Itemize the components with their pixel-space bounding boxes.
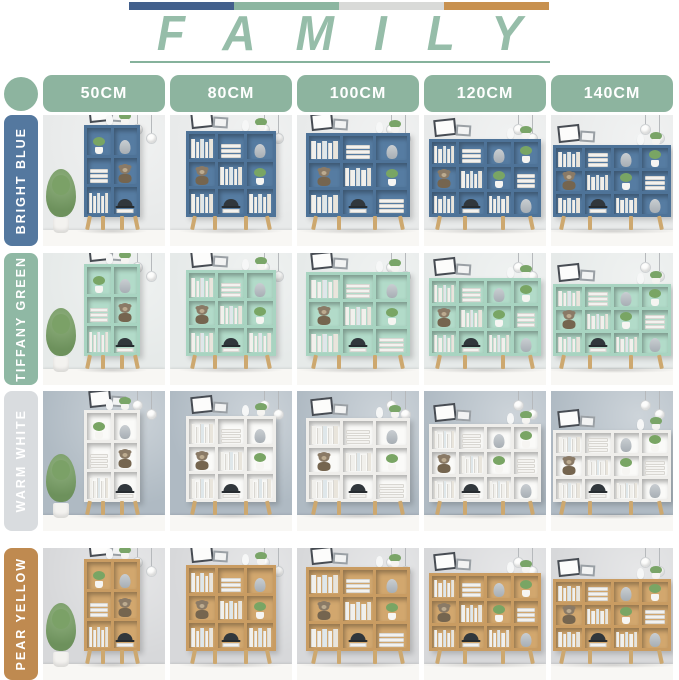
vase [255, 429, 266, 443]
shelf-compartment [218, 301, 244, 326]
bookshelf [186, 416, 276, 502]
teddy-bear [317, 306, 332, 325]
teddy-bear [118, 598, 133, 617]
picture-frame [310, 397, 334, 416]
shelf-compartment [459, 452, 483, 474]
size-pill-120cm[interactable]: 120CM [424, 75, 546, 112]
shelf-compartment [309, 163, 340, 187]
color-pill-bright-blue[interactable]: BRIGHT BLUE [4, 115, 38, 246]
product-photo-bright-blue-80cm[interactable] [170, 115, 292, 246]
shelf-compartment [376, 136, 407, 160]
shelf-compartment [114, 158, 138, 185]
picture-frame [433, 257, 457, 276]
potted-plant [619, 312, 633, 329]
shelf-compartment [585, 148, 611, 168]
hat [348, 199, 367, 213]
shelf-compartment [189, 419, 215, 444]
product-photo-tiffany-green-50cm[interactable] [43, 253, 165, 385]
hat [222, 199, 241, 213]
bookshelf [306, 133, 410, 217]
shelf-compartment [343, 190, 374, 214]
lamp-cord [405, 253, 406, 271]
shelf-compartment [487, 427, 511, 449]
color-pill-warm-white[interactable]: WARM WHITE [4, 391, 38, 531]
books [311, 333, 338, 352]
plant-foliage [52, 609, 70, 629]
plant-foliage [52, 175, 70, 195]
family-bookshelf-collage: FAMILY 50CM80CM100CM120CM140CM BRIGHT BL… [0, 0, 679, 680]
book-stack [517, 607, 535, 622]
picture-frame [557, 124, 581, 143]
hat [588, 484, 607, 498]
books [191, 572, 213, 592]
picture-frame [190, 115, 214, 129]
shelf-compartment [309, 597, 340, 621]
book-stack [379, 483, 404, 498]
shelf-leg [463, 355, 467, 369]
shelf-leg [244, 501, 248, 515]
shelf-compartment [247, 162, 273, 187]
potted-plant [619, 173, 633, 190]
shelf-body [306, 418, 410, 502]
lamp-cord [151, 391, 152, 409]
vase [493, 288, 504, 302]
vase [255, 144, 266, 158]
shelf-compartment [376, 275, 407, 299]
product-photo-tiffany-green-100cm[interactable] [297, 253, 419, 385]
book-stack [346, 283, 371, 298]
variant-row-bright-blue: BRIGHT BLUE [4, 115, 673, 246]
books [616, 482, 638, 498]
bust-vase [637, 134, 644, 145]
shelf-compartment [114, 297, 138, 324]
shelf-compartment [459, 427, 483, 449]
shelf-body [84, 264, 140, 356]
bust-vase [507, 128, 514, 139]
vase [650, 338, 661, 352]
books [249, 193, 271, 213]
shelf-compartment [459, 306, 483, 328]
hat [116, 633, 135, 647]
shelf-compartment [487, 626, 511, 648]
potted-plant [92, 276, 106, 293]
product-photo-tiffany-green-120cm[interactable] [424, 253, 546, 385]
lamp-cord [391, 391, 392, 400]
books [616, 197, 638, 213]
top-plant [118, 253, 132, 264]
shelf-compartment [343, 475, 374, 499]
shelf-compartment [614, 456, 640, 476]
product-photo-tiffany-green-80cm[interactable] [170, 253, 292, 385]
lamp-bulb [146, 566, 157, 577]
shelf-leg [629, 216, 633, 230]
books [249, 332, 271, 352]
vase [650, 199, 661, 213]
top-plant [254, 403, 268, 416]
books [558, 197, 580, 213]
product-photo-pear-yellow-80cm[interactable] [170, 548, 292, 680]
shelf-body [186, 565, 276, 651]
shelf-compartment [642, 310, 668, 330]
vase [120, 425, 131, 439]
shelf-compartment [432, 331, 456, 353]
shelf-compartment [614, 479, 640, 499]
potted-plant [385, 603, 399, 620]
books [558, 336, 580, 352]
books [311, 279, 338, 298]
book-stack [221, 282, 241, 297]
shelf-compartment [87, 443, 111, 470]
hat [348, 338, 367, 352]
shelf-compartment [376, 624, 407, 648]
lamp-cord [405, 391, 406, 409]
shelf-compartment [114, 621, 138, 648]
shelf-compartment [642, 287, 668, 307]
picture-frame [456, 409, 472, 421]
vase [255, 283, 266, 297]
shelf-compartment [247, 189, 273, 214]
shelf-leg [213, 501, 217, 515]
picture-frame [213, 116, 229, 128]
bust-vase [106, 548, 113, 559]
product-photo-warm-white-50cm[interactable] [43, 391, 165, 531]
potted-plant [492, 171, 506, 188]
shelf-leg [501, 355, 505, 369]
shelf-compartment [343, 136, 374, 160]
shelf-body [429, 278, 541, 356]
ground-shadow [299, 367, 417, 373]
shelf-compartment [432, 477, 456, 499]
book-stack [517, 312, 535, 327]
shelf-compartment [309, 421, 340, 445]
shelf-compartment [218, 568, 244, 593]
top-plant [388, 554, 402, 567]
lamp-cord [659, 548, 660, 566]
floor-plant [46, 169, 76, 233]
books [311, 628, 338, 647]
size-pill-80cm[interactable]: 80CM [170, 75, 292, 112]
shelf-compartment [309, 275, 340, 299]
product-photo-tiffany-green-140cm[interactable] [551, 253, 673, 385]
shelf-compartment [376, 421, 407, 445]
shelf-leg [213, 355, 217, 369]
product-photo-warm-white-80cm[interactable] [170, 391, 292, 531]
hat [462, 633, 481, 647]
books [220, 166, 242, 186]
shelf-compartment [585, 310, 611, 330]
size-pill-100cm[interactable]: 100CM [297, 75, 419, 112]
hat [116, 199, 135, 213]
picture-frame [190, 395, 214, 414]
shelf-leg [501, 650, 505, 664]
shelf-compartment [487, 576, 511, 598]
top-plant [118, 115, 132, 125]
teddy-bear [317, 167, 332, 186]
product-photo-warm-white-140cm[interactable] [551, 391, 673, 531]
potted-plant [385, 308, 399, 325]
shelf-compartment [585, 479, 611, 499]
size-pill-140cm[interactable]: 140CM [551, 75, 673, 112]
books [461, 455, 481, 473]
bust-vase [637, 568, 644, 579]
shelf-body [84, 410, 140, 502]
product-photo-bright-blue-100cm[interactable] [297, 115, 419, 246]
product-photo-bright-blue-120cm[interactable] [424, 115, 546, 246]
plant-pot [53, 503, 69, 518]
books [311, 425, 338, 444]
shelf-body [186, 416, 276, 502]
potted-plant [519, 146, 533, 163]
hat [222, 338, 241, 352]
pendant-lamp [146, 548, 157, 577]
books [311, 479, 338, 498]
shelf-compartment [247, 273, 273, 298]
books [191, 423, 213, 443]
shelf-compartment [459, 331, 483, 353]
bookshelf [186, 131, 276, 217]
book-stack [221, 143, 241, 158]
vase [386, 284, 397, 298]
lamp-cord [645, 115, 646, 124]
book-stack [645, 460, 665, 475]
books [345, 452, 372, 471]
shelf-compartment [459, 142, 483, 164]
shelf-compartment [432, 167, 456, 189]
product-photo-pear-yellow-50cm[interactable] [43, 548, 165, 680]
shelf-compartment [189, 189, 215, 214]
shelf-body [429, 573, 541, 651]
teddy-bear [195, 305, 210, 324]
books [461, 170, 481, 188]
pendant-lamp [513, 391, 524, 411]
shelf-compartment [247, 623, 273, 648]
vase [120, 574, 131, 588]
picture-frame [310, 115, 334, 131]
books [434, 334, 454, 352]
shelf-body [186, 270, 276, 356]
pendant-lamp [654, 391, 665, 420]
product-photo-pear-yellow-140cm[interactable] [551, 548, 673, 680]
color-pill-pear-yellow[interactable]: PEAR YELLOW [4, 548, 38, 680]
vase [493, 583, 504, 597]
shelf-leg [120, 650, 124, 664]
ground-shadow [299, 513, 417, 519]
potted-plant [92, 571, 106, 588]
shelf-compartment [459, 576, 483, 598]
shelf-compartment [642, 171, 668, 191]
shelf-compartment [642, 333, 668, 353]
shelf-compartment [514, 427, 538, 449]
color-pill-label: BRIGHT BLUE [14, 127, 28, 234]
book-stack [517, 173, 535, 188]
potted-plant [253, 307, 267, 324]
shelf-compartment [376, 190, 407, 214]
books [89, 626, 109, 647]
pendant-lamp [640, 253, 651, 273]
shelf-compartment [376, 475, 407, 499]
shelf-compartment [642, 194, 668, 214]
shelf-leg [501, 501, 505, 515]
books [220, 600, 242, 620]
product-photo-pear-yellow-120cm[interactable] [424, 548, 546, 680]
teddy-bear [561, 310, 576, 329]
picture-frame [557, 409, 581, 428]
top-plant [388, 120, 402, 133]
book-stack [346, 578, 371, 593]
shelf-compartment [218, 419, 244, 444]
top-plant [649, 417, 663, 430]
shelf-compartment [487, 306, 511, 328]
ground-shadow [424, 662, 546, 668]
top-plant [388, 405, 402, 418]
shelf-compartment [309, 475, 340, 499]
top-plant [519, 560, 533, 573]
books [345, 167, 372, 186]
teddy-bear [437, 603, 452, 622]
shelf-compartment [218, 623, 244, 648]
shelf-compartment [614, 605, 640, 625]
product-photo-bright-blue-50cm[interactable] [43, 115, 165, 246]
books [587, 459, 609, 475]
shelf-compartment [114, 472, 138, 499]
shelf-compartment [514, 281, 538, 303]
lamp-cord [518, 253, 519, 262]
shelf-compartment [218, 474, 244, 499]
lamp-cord [518, 115, 519, 124]
shelf-compartment [218, 447, 244, 472]
picture-frame [213, 550, 229, 562]
shelf-compartment [614, 333, 640, 353]
bust-vase [106, 253, 113, 264]
shelf-compartment [514, 306, 538, 328]
color-pill-label: TIFFANY GREEN [14, 256, 28, 382]
vase [120, 279, 131, 293]
picture-frame [580, 564, 596, 576]
book-stack [517, 458, 535, 473]
shelf-compartment [556, 287, 582, 307]
shelf-compartment [432, 142, 456, 164]
shelf-compartment [432, 281, 456, 303]
bookshelf [553, 284, 671, 356]
top-plant [519, 126, 533, 139]
books [587, 608, 609, 624]
shelf-compartment [343, 421, 374, 445]
picture-frame [333, 403, 349, 415]
shelf-compartment [376, 597, 407, 621]
legend-dot [4, 77, 38, 111]
lamp-cord [659, 115, 660, 133]
picture-frame [433, 118, 457, 137]
shelf-compartment [487, 477, 511, 499]
books [558, 482, 580, 498]
shelf-compartment [87, 413, 111, 440]
top-plant [388, 259, 402, 272]
bust-vase [106, 399, 113, 410]
shelf-compartment [585, 333, 611, 353]
shelf-compartment [514, 142, 538, 164]
shelf-compartment [585, 582, 611, 602]
color-pill-tiffany-green[interactable]: TIFFANY GREEN [4, 253, 38, 385]
shelf-compartment [487, 281, 511, 303]
books [558, 631, 580, 647]
picture-frame [456, 124, 472, 136]
bookshelf [429, 139, 541, 217]
shelf-body [84, 125, 140, 217]
product-photo-warm-white-120cm[interactable] [424, 391, 546, 531]
hat [222, 633, 241, 647]
shelf-compartment [487, 601, 511, 623]
shelf-body [553, 284, 671, 356]
hat [588, 199, 607, 213]
picture-frame [557, 558, 581, 577]
teddy-bear [437, 169, 452, 188]
teddy-bear [195, 451, 210, 470]
variant-row-tiffany-green: TIFFANY GREEN [4, 253, 673, 385]
potted-plant [648, 584, 662, 601]
shelf-compartment [247, 596, 273, 621]
lamp-cord [405, 548, 406, 566]
ground-shadow [299, 228, 417, 234]
shelf-leg [101, 216, 105, 230]
product-photo-pear-yellow-100cm[interactable] [297, 548, 419, 680]
pendant-lamp [132, 391, 143, 411]
potted-plant [253, 453, 267, 470]
product-photo-bright-blue-140cm[interactable] [551, 115, 673, 246]
pendant-lamp [640, 391, 651, 411]
picture-frame [433, 403, 457, 422]
teddy-bear [317, 452, 332, 471]
shelf-compartment [514, 452, 538, 474]
books [89, 331, 109, 352]
lamp-bulb [146, 133, 157, 144]
size-pill-50cm[interactable]: 50CM [43, 75, 165, 112]
potted-plant [385, 454, 399, 471]
shelf-compartment [487, 331, 511, 353]
pendant-lamp [146, 253, 157, 282]
vase [520, 633, 531, 647]
shelf-compartment [556, 194, 582, 214]
teddy-bear [118, 449, 133, 468]
book-stack [346, 144, 371, 159]
book-stack [645, 314, 665, 329]
variant-row-warm-white: WARM WHITE [4, 391, 673, 531]
shelf-compartment [114, 413, 138, 440]
potted-plant [492, 310, 506, 327]
shelf-leg [244, 650, 248, 664]
bookshelf [306, 567, 410, 651]
plant-pot [53, 218, 69, 233]
shelf-compartment [514, 601, 538, 623]
product-photo-warm-white-100cm[interactable] [297, 391, 419, 531]
bookshelf [553, 145, 671, 217]
plant-foliage [52, 460, 70, 480]
shelf-compartment [614, 628, 640, 648]
vase [255, 578, 266, 592]
bust-vase [376, 261, 383, 272]
books [191, 138, 213, 158]
shelf-compartment [309, 624, 340, 648]
shelf-compartment [87, 621, 111, 648]
books [461, 309, 481, 327]
shelf-compartment [642, 148, 668, 168]
bookshelf [186, 565, 276, 651]
shelf-compartment [189, 134, 215, 159]
shelf-body [84, 559, 140, 651]
ground-shadow [424, 228, 546, 234]
shelf-compartment [459, 192, 483, 214]
vase [621, 438, 632, 452]
shelf-compartment [189, 623, 215, 648]
